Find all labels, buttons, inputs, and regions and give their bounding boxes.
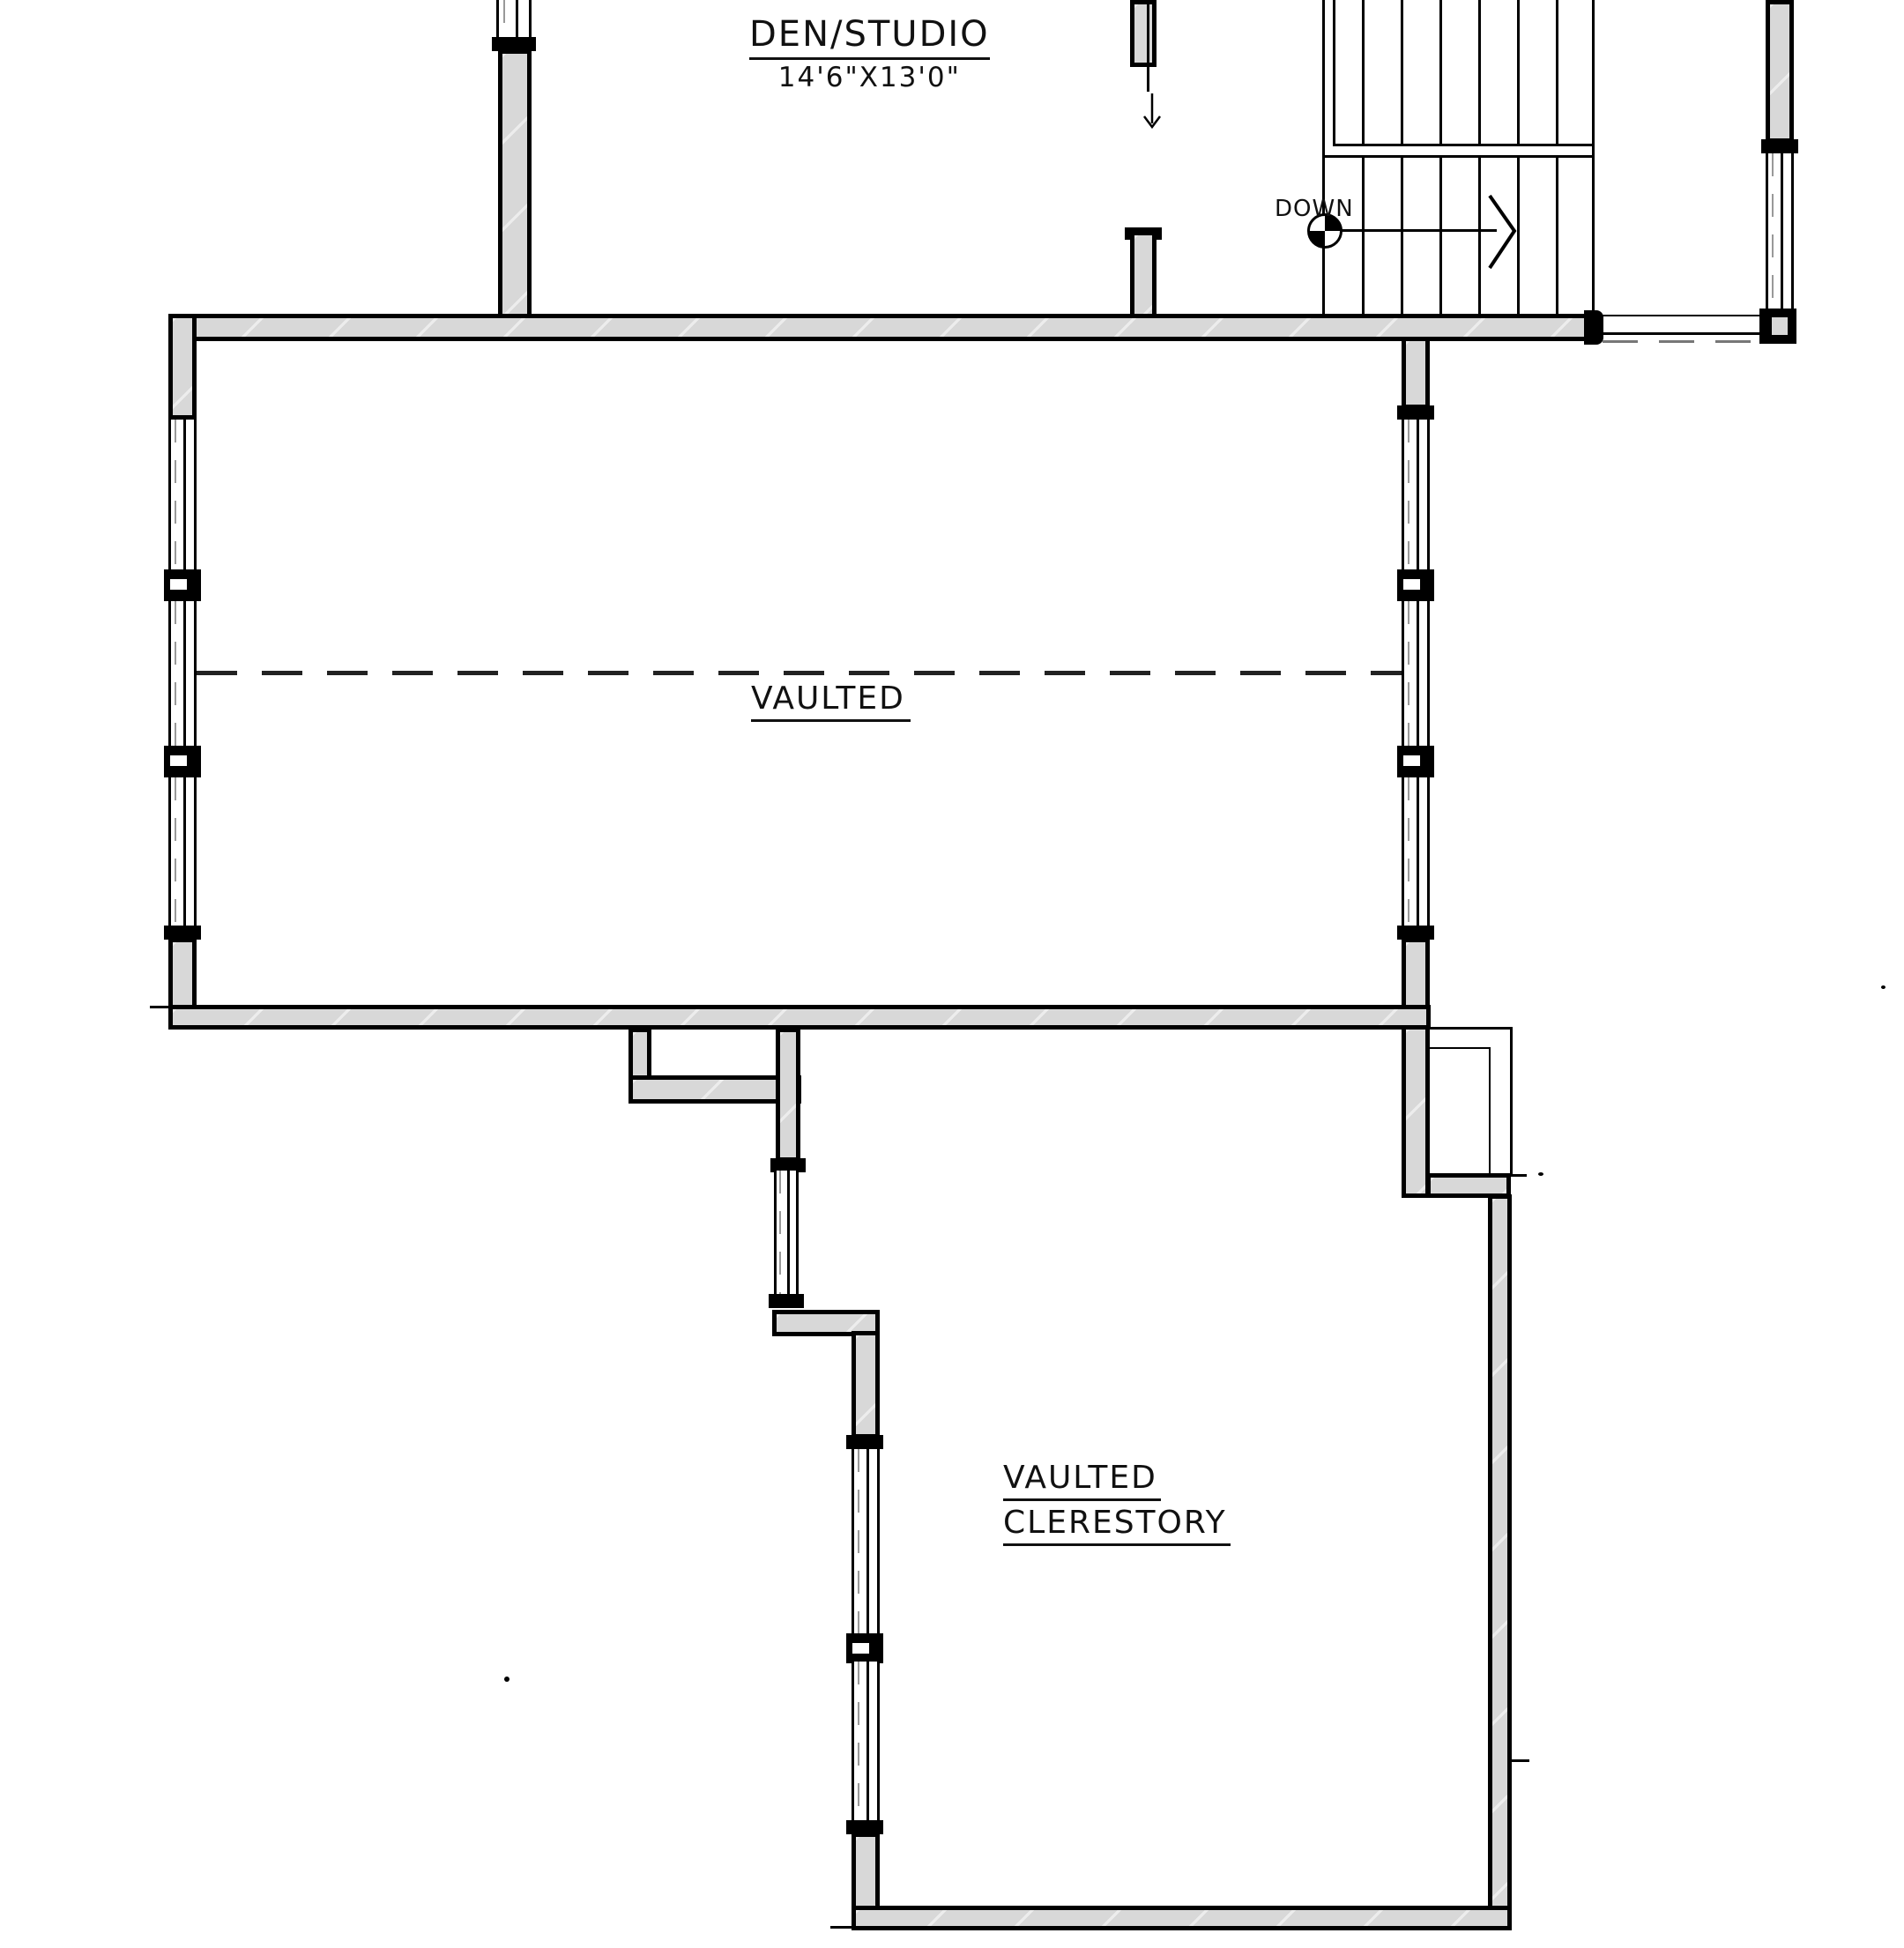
clerestory-label-line2: CLERESTORY [1003,1505,1231,1546]
dimension-tick [1510,1759,1529,1762]
window [774,1171,799,1296]
window [168,420,197,571]
window [168,601,197,747]
stair-inner-line [1333,0,1335,146]
wall-face-line [1147,0,1149,92]
wall-segment [1130,231,1157,319]
stair-tread [1362,158,1365,316]
opening-head-line [1603,315,1766,316]
stair-tread [1478,158,1481,316]
stair-landing-line [1333,144,1595,146]
stair-tread [1362,0,1365,144]
down-arrow-small [1140,93,1164,132]
wall-segment [1130,0,1157,67]
down-arrow-shaft [1324,229,1497,232]
wall-segment [1402,938,1430,1198]
window-mullion [164,746,201,777]
vault-line [197,671,1402,675]
wall-corner-block [1759,309,1796,344]
roof-outline-inner [1428,1047,1491,1175]
window-end-cap [1397,405,1434,420]
stair-tread [1556,0,1558,144]
window [1402,777,1430,927]
clerestory-label-group: VAULTED CLERESTORY [1003,1460,1231,1546]
wall-main-horizontal [168,314,1591,341]
window [168,777,197,927]
window [1402,601,1430,747]
floor-plan: DOWN DEN/STUDIO 14'6"X13'0" VAULTED VAUL… [0,0,1904,1948]
down-arrow-head [1486,192,1518,271]
opening-sill-line [1603,332,1766,335]
wall-bottom-horizontal [852,1906,1512,1930]
den-studio-label-group: DEN/STUDIO 14'6"X13'0" [749,14,990,93]
window-end-cap [1761,139,1798,153]
window [496,0,532,39]
den-studio-dimensions: 14'6"X13'0" [778,62,961,93]
opening-dashed-line [1603,340,1766,343]
stair-tread [1401,0,1403,144]
dimension-tick [830,1926,853,1929]
window-end-cap [846,1435,883,1449]
wall-segment [852,1331,880,1439]
stray-mark [1881,985,1885,989]
window [852,1449,880,1637]
window [1766,153,1794,312]
stair-tread [1401,158,1403,316]
window-mullion [164,569,201,601]
stair-tread [1478,0,1481,144]
window-mullion [1397,569,1434,601]
down-label: DOWN [1275,196,1354,222]
dimension-tick [1513,1174,1527,1177]
stair-tread [1556,158,1558,316]
stair-tread [1439,158,1442,316]
window-end-cap [769,1294,804,1308]
window [852,1662,880,1822]
wall-segment [168,314,197,420]
vaulted-label-wrap: VAULTED [751,680,911,722]
dimension-tick [150,1006,171,1008]
den-studio-label: DEN/STUDIO [749,14,990,60]
window [1402,420,1430,571]
wall-segment [1766,0,1794,143]
wall-segment [1488,1194,1512,1930]
stray-mark [504,1677,509,1682]
wall-bottom-horizontal [168,1005,1431,1030]
stray-mark [1538,1172,1543,1176]
clerestory-label-line1: VAULTED [1003,1460,1161,1501]
wall-segment [1402,337,1430,409]
stair-left-line [1322,0,1325,317]
window-mullion [846,1633,883,1663]
stair-tread [1517,0,1520,144]
stair-tread [1439,0,1442,144]
stair-right-line [1592,0,1595,317]
window-mullion [1397,746,1434,777]
wall-segment [776,1028,800,1162]
wall-segment [498,49,532,319]
vaulted-label: VAULTED [751,680,911,722]
